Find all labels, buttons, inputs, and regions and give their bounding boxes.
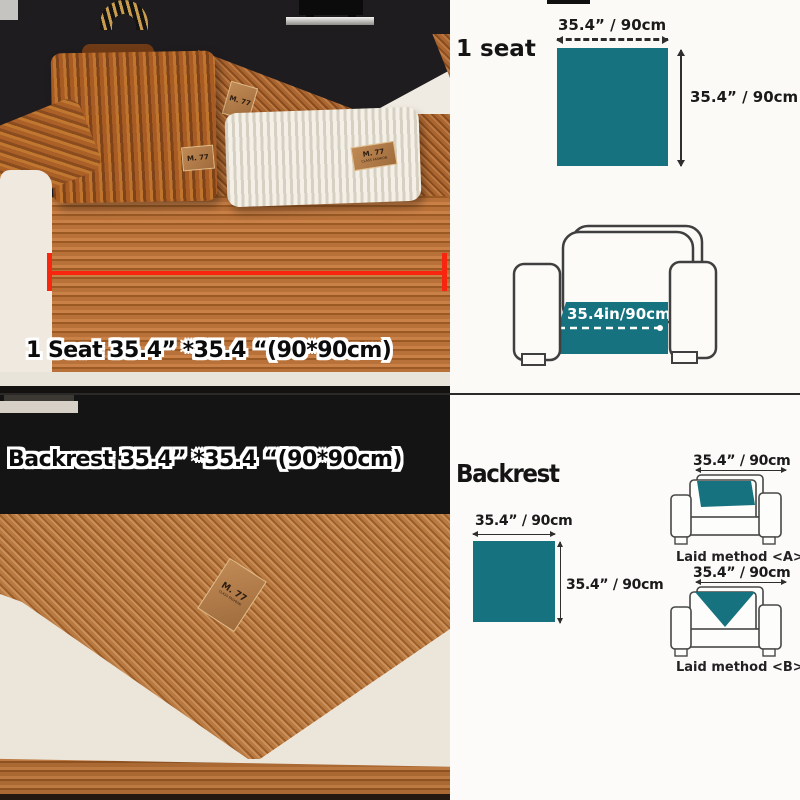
chair-foot [672,352,697,363]
crop-artifact [547,0,590,4]
brand-tag-text: M. 77 [228,94,251,108]
measure-line [50,271,444,275]
chair-seat [690,517,760,535]
arrow-dot [657,325,663,331]
width-dimension-label: 35.4” / 90cm [558,16,666,34]
laid-method-b-caption: Laid method <B> [676,660,800,675]
chair-foot [675,649,687,656]
laid-method-a-chair [663,473,791,547]
backrest-diagram-panel: Backrest 35.4” / 90cm 35.4” / 90cm 35.4”… [450,395,800,800]
backrest-cover-photo: M. 77 CLASS FASHION Backrest 35.4” *35.4… [0,395,450,800]
floor-shadow [0,794,450,800]
cover-on-backrest [697,481,755,507]
shelf-object [0,401,78,413]
chair-seat [690,629,760,647]
seat-cover-strip [0,752,450,800]
width-arrow-icon [557,38,668,41]
width-arrow-icon [473,534,555,535]
fabric-square-diagram [473,541,555,622]
panel-title-one-seat: 1 seat [456,36,536,62]
window-corner [0,0,18,20]
laid-method-a-caption: Laid method <A> [676,550,800,565]
floor-shadow [0,386,450,393]
chair-left-arm [671,607,691,649]
height-arrow-icon [680,50,682,166]
chair-foot [763,649,775,656]
height-arrow-icon [560,542,561,623]
panel-title-backrest: Backrest [456,459,559,488]
height-dimension-label: 35.4” / 90cm [566,577,663,593]
width-dimension-label: 35.4” / 90cm [475,513,572,529]
method-b-arrow-icon [696,582,786,583]
fabric-square-diagram [557,48,668,166]
armchair-diagram: 35.4in/90cm [502,224,738,370]
sofa-seat-photo: M. 77 M. 77 M. 77 CLASS FASHION 1 Seat 3… [0,0,450,393]
brand-tag-text: M. 77 [187,153,209,163]
wall-shelf [286,17,374,25]
measure-line-end [47,253,52,291]
backrest-size-caption: Backrest 35.4” *35.4 “(90*90cm) [8,447,402,472]
chair-left-arm [514,264,560,360]
cover-corner-fold [428,34,450,78]
chair-foot [675,537,687,544]
measure-line-end [442,253,447,291]
product-size-guide: M. 77 M. 77 M. 77 CLASS FASHION 1 Seat 3… [0,0,800,800]
laid-method-b-chair [663,585,791,659]
backrest-cover-draped [0,514,450,764]
method-a-dimension-label: 35.4” / 90cm [693,453,790,469]
method-a-arrow-icon [696,470,786,471]
seat-width-label: 35.4in/90cm [567,305,671,323]
chair-foot [522,354,545,365]
method-b-dimension-label: 35.4” / 90cm [693,565,790,581]
seat-size-caption: 1 Seat 35.4” *35.4 “(90*90cm) [26,338,391,363]
chair-right-arm [759,493,781,537]
chair-foot [763,537,775,544]
brand-tag: M. 77 [181,145,215,172]
chair-right-arm [670,262,716,358]
chair-right-arm [759,605,781,649]
one-seat-diagram-panel: 1 seat 35.4” / 90cm 35.4” / 90cm 35.4in/… [450,0,800,393]
chair-left-arm [671,495,691,537]
height-dimension-label: 35.4” / 90cm [690,88,798,106]
